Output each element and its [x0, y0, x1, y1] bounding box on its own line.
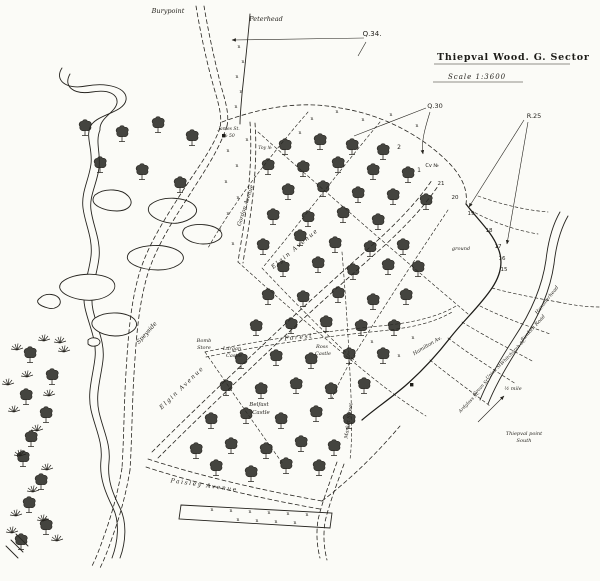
map-label: 21 — [438, 181, 445, 187]
tree-icon-part — [262, 289, 274, 300]
tree-icon — [262, 159, 274, 175]
tree-icon-part — [174, 177, 186, 188]
tree-icon-part — [258, 394, 264, 399]
tree-icon-part — [136, 164, 148, 175]
tree-icon-part — [332, 157, 344, 168]
map-label: Ardglass St. — [457, 390, 482, 415]
marsh-tuft-icon-part — [31, 425, 43, 432]
map-label: 20 — [452, 195, 459, 201]
tree-icon — [346, 139, 358, 155]
map-label: Ross — [315, 344, 328, 350]
tree-icon-part — [243, 419, 249, 424]
map-label: 18 — [486, 228, 493, 234]
tree-icon-part — [24, 347, 36, 358]
tree-icon — [329, 237, 341, 253]
map-label: 16 — [499, 256, 506, 262]
tree-icon-part — [263, 454, 269, 459]
shelter-mark: n — [227, 149, 230, 154]
tree-icon-part — [385, 270, 391, 275]
tree-icon-part — [361, 389, 367, 394]
marsh-tuft-icon — [41, 464, 53, 471]
pond — [88, 338, 100, 346]
trench-map-page: nnnnnnnnnnnnnnnnnnnnnnnnnnnnnnnn Burypoi… — [0, 0, 600, 581]
marsh-tuft-icon-part — [2, 379, 14, 386]
tree-icon-part — [190, 443, 202, 454]
tree-icon-part — [260, 443, 272, 454]
tree-icon-part — [380, 359, 386, 364]
marsh-tuft-icon — [8, 406, 20, 413]
shelter-mark: n — [412, 336, 415, 341]
tree-icon — [367, 294, 379, 310]
forest-ride — [205, 306, 456, 352]
map-label: James St. — [217, 126, 240, 132]
peterhead-trench — [240, 14, 250, 124]
tree-icon-part — [308, 364, 314, 369]
tree-icon-part — [152, 117, 164, 128]
map-label: Toy № — [258, 145, 272, 151]
tree-icon — [388, 320, 400, 336]
marsh-tuft-icon-part — [51, 535, 63, 542]
tree-icon-part — [317, 145, 323, 150]
marsh-tuft-icon-part — [54, 337, 66, 344]
tree-icon-part — [205, 413, 217, 424]
tree-icon-part — [260, 250, 266, 255]
map-title: Thiepval Wood. G. Sector — [437, 52, 590, 63]
q34-arrow — [232, 38, 364, 40]
tree-icon-part — [267, 209, 279, 220]
tree-icon-part — [340, 218, 346, 223]
shelter-mark: n — [230, 509, 233, 514]
tree-icon-part — [49, 380, 55, 385]
tree-icon-part — [390, 200, 396, 205]
tree-icon-part — [275, 413, 287, 424]
shelter-mark: n — [236, 164, 239, 169]
tree-icon-part — [43, 530, 49, 535]
tree-icon-part — [397, 239, 409, 250]
tree-icon — [285, 318, 297, 334]
tree-icon — [343, 348, 355, 364]
tree-icon-part — [26, 508, 32, 513]
tree-icon-part — [35, 474, 47, 485]
wood-north-boundary — [222, 105, 466, 204]
tree-icon-part — [193, 454, 199, 459]
tree-icon-part — [223, 391, 229, 396]
map-label: Belfast — [248, 402, 269, 408]
marsh-tuft-icon-part — [8, 406, 20, 413]
shelter-mark: n — [306, 513, 309, 518]
tree-icon — [372, 214, 384, 230]
map-label: Bomb — [196, 338, 212, 344]
marsh-tuft-icon-part — [27, 486, 39, 493]
marsh-tuft-icon — [21, 371, 33, 378]
tree-icon-part — [245, 466, 257, 477]
tree-icon — [290, 378, 302, 394]
tree-icon-part — [313, 460, 325, 471]
road-south-centre — [324, 464, 344, 560]
tree-icon-part — [323, 327, 329, 332]
wood-ride — [332, 210, 448, 398]
tree-icon-part — [27, 358, 33, 363]
marsh-tuft-icon-part — [41, 464, 53, 471]
tree-icon — [297, 291, 309, 307]
tree-icon-part — [355, 198, 361, 203]
tree-icon — [15, 534, 27, 550]
wood-ride — [258, 132, 468, 314]
map-label: 19 — [468, 211, 475, 217]
tree-icon — [240, 408, 252, 424]
shelter-mark: n — [362, 118, 365, 123]
shelter-marks: nnnnnnnnnnnnnnnnnnnnnnnnnnnnnnnn — [211, 45, 419, 526]
tree-icon — [412, 261, 424, 277]
shelter-mark: n — [232, 242, 235, 247]
shelter-mark: n — [237, 518, 240, 523]
tree-icon-part — [313, 417, 319, 422]
marsh-tuft-icon — [58, 346, 70, 353]
tree-icon-part — [186, 130, 198, 141]
tree-icon — [205, 413, 217, 429]
tree-icon-part — [28, 442, 34, 447]
map-label: Q.34. — [363, 30, 382, 38]
tree-icon-part — [364, 241, 376, 252]
tree-icon-part — [370, 175, 376, 180]
tree-icon-part — [346, 139, 358, 150]
tree-icon-part — [280, 272, 286, 277]
pond — [93, 190, 131, 211]
tree-icon-part — [295, 436, 307, 447]
q30-arrow — [422, 112, 430, 154]
tree-icon — [270, 350, 282, 366]
marsh-tuft-icon — [38, 335, 50, 342]
tree-icon-part — [265, 300, 271, 305]
sunken-road — [546, 212, 560, 260]
map-label: South — [517, 438, 532, 444]
tree-icon-part — [382, 259, 394, 270]
marsh-tuft-icon-part — [43, 390, 55, 397]
tree-icon-part — [20, 389, 32, 400]
tree-icon-part — [240, 408, 252, 419]
tree-icon — [267, 209, 279, 225]
map-label: Elgin Avenue — [157, 365, 205, 412]
tree-icon-part — [273, 361, 279, 366]
tree-icon-part — [332, 248, 338, 253]
tree-icon — [255, 383, 267, 399]
shelter-mark: n — [294, 521, 297, 526]
tree-icon-part — [370, 305, 376, 310]
map-label: Peterhead — [248, 15, 283, 23]
marsh-tuft-icon — [54, 337, 66, 344]
tree-icon — [314, 134, 326, 150]
tree-icon-part — [20, 462, 26, 467]
map-label: Whitchurch St. — [499, 337, 528, 366]
map-extras — [6, 505, 332, 558]
map-label: Thiepval point — [506, 431, 543, 437]
shelter-mark: n — [227, 212, 230, 217]
map-label: Q.30 — [427, 102, 442, 110]
shelter-mark: n — [299, 131, 302, 136]
pond — [148, 198, 196, 223]
comm-trench — [430, 360, 490, 406]
shelter-mark: n — [287, 512, 290, 517]
map-label: 15 — [501, 267, 508, 273]
tree-icon-part — [225, 438, 237, 449]
tree-icon-part — [213, 471, 219, 476]
tree-icon-part — [329, 237, 341, 248]
tree-icon-part — [119, 137, 125, 142]
map-label: Burypoint — [151, 7, 185, 15]
tree-icon-part — [257, 239, 269, 250]
tree-icon — [377, 348, 389, 364]
pond — [127, 245, 183, 270]
tree-icon-part — [280, 458, 292, 469]
tree-icon-part — [262, 159, 274, 170]
tree-icon-part — [270, 220, 276, 225]
shelter-mark: n — [268, 511, 271, 516]
tree-icon — [23, 497, 35, 513]
tree-icon — [312, 257, 324, 273]
tree-icon-part — [305, 222, 311, 227]
marsh-tuft-icon — [10, 510, 22, 517]
tree-icon-part — [255, 383, 267, 394]
tree-icon-part — [285, 318, 297, 329]
tree-icon — [387, 189, 399, 205]
wood-ride — [262, 268, 356, 362]
road-north — [204, 6, 228, 126]
tree-icon — [40, 407, 52, 423]
tree-icon-part — [320, 192, 326, 197]
shelter-mark: n — [240, 90, 243, 95]
marsh-tuft-icon-part — [6, 527, 18, 534]
tree-icon — [297, 161, 309, 177]
tree-icon-part — [415, 272, 421, 277]
pond — [183, 225, 222, 244]
tree-icon — [250, 320, 262, 336]
tree-icon-part — [412, 261, 424, 272]
tree-icon-part — [335, 168, 341, 173]
tree-icon-part — [350, 275, 356, 280]
tree-icon — [302, 211, 314, 227]
shelter-mark: n — [235, 105, 238, 110]
tree-icon — [325, 383, 337, 399]
tree-icon — [220, 380, 232, 396]
tree-icon-part — [46, 369, 58, 380]
tree-icon — [280, 458, 292, 474]
tree-icon — [352, 187, 364, 203]
tree-icon — [328, 440, 340, 456]
tree-icon-part — [283, 469, 289, 474]
tree-icon-part — [314, 134, 326, 145]
tree-icon-part — [388, 320, 400, 331]
q34-tick — [358, 42, 366, 56]
tree-icon-part — [297, 291, 309, 302]
wood-southeast-edge — [322, 426, 400, 501]
tree-icon — [400, 289, 412, 305]
shelter-mark: n — [249, 510, 252, 515]
tree-icon-part — [25, 431, 37, 442]
marsh-tuft-icon-part — [58, 346, 70, 353]
marsh-tuft-icon-part — [21, 371, 33, 378]
marsh-tuft-icon — [2, 379, 14, 386]
tree-icon-part — [325, 383, 337, 394]
tree-icon-part — [316, 471, 322, 476]
tree-icon-part — [282, 184, 294, 195]
tree-icon-part — [298, 447, 304, 452]
tree-icon-part — [391, 331, 397, 336]
tree-icon-part — [40, 407, 52, 418]
shelter-mark: n — [219, 228, 222, 233]
shelter-mark: n — [225, 180, 228, 185]
tree-icon — [332, 287, 344, 303]
marsh-tuft-icon — [51, 535, 63, 542]
shelter-mark: n — [211, 508, 214, 513]
tree-icon-part — [18, 545, 24, 550]
tree-icon-part — [285, 195, 291, 200]
trench-lines — [240, 14, 568, 420]
shelter-mark: n — [256, 519, 259, 524]
tree-icon-part — [355, 320, 367, 331]
tree-icon-part — [189, 141, 195, 146]
map-label: Hamilton Av. — [411, 335, 443, 358]
tree-icon-part — [15, 534, 27, 545]
tree-icon — [402, 167, 414, 183]
tree-icon-part — [38, 485, 44, 490]
tree-icon — [94, 157, 106, 173]
tree-icon — [25, 431, 37, 447]
tree-icon — [317, 181, 329, 197]
tree-icon — [152, 117, 164, 133]
shelter-mark: n — [236, 75, 239, 80]
tree-icon — [310, 406, 322, 422]
tree-icon — [20, 389, 32, 405]
tree-icon — [210, 460, 222, 476]
tree-icon — [282, 184, 294, 200]
tree-icon — [174, 177, 186, 193]
map-label: Hammerhead — [534, 285, 561, 317]
dump-strip — [179, 505, 332, 528]
road-south-centre — [317, 462, 337, 558]
map-label: Castle — [315, 351, 331, 357]
tree-icon — [257, 239, 269, 255]
tree-icon-part — [377, 348, 389, 359]
tree-icon — [295, 436, 307, 452]
roads — [92, 6, 600, 568]
tree-icon-part — [97, 168, 103, 173]
tree-icon-part — [405, 178, 411, 183]
tree-icon-part — [358, 378, 370, 389]
tree-icon-part — [387, 189, 399, 200]
tree-icon-part — [328, 440, 340, 451]
tree-icon-part — [155, 128, 161, 133]
tree-icon — [79, 120, 91, 136]
tree-icon-part — [23, 400, 29, 405]
tree-icon-part — [23, 497, 35, 508]
tree-icon-part — [82, 131, 88, 136]
sunken-road — [554, 216, 568, 264]
map-label: Paisley Avenue — [169, 477, 238, 494]
tree-icon — [245, 466, 257, 482]
tree-icon-part — [343, 348, 355, 359]
dugout-square — [410, 383, 413, 386]
tree-icon-part — [315, 268, 321, 273]
tree-icon-part — [79, 120, 91, 131]
tree-icon-part — [332, 287, 344, 298]
road-southwest — [100, 470, 130, 568]
shelter-mark: n — [311, 117, 314, 122]
tree-icon-part — [400, 250, 406, 255]
tree-icon-part — [279, 139, 291, 150]
shelter-mark: n — [390, 113, 393, 118]
tree-icon — [337, 207, 349, 223]
map-label: 2 — [397, 144, 401, 151]
map-label: Lurgan — [222, 346, 241, 352]
tree-icon — [275, 413, 287, 429]
map-label: 1 — [417, 167, 421, 174]
tree-icon-part — [94, 157, 106, 168]
tree-icon — [46, 369, 58, 385]
comm-trench — [558, 302, 600, 307]
tree-icon-part — [317, 181, 329, 192]
tree-icon-part — [253, 331, 259, 336]
marsh-tuft-icon — [31, 425, 43, 432]
tree-icon — [186, 130, 198, 146]
r25-arrow — [507, 122, 528, 244]
shelter-mark: n — [242, 60, 245, 65]
marsh-tuft-icon-part — [10, 510, 22, 517]
map-scale: Scale 1:3600 — [448, 73, 506, 81]
tree-icon — [116, 126, 128, 142]
map-label: ground — [452, 246, 470, 252]
elgin-avenue — [152, 180, 432, 452]
marsh-tuft-icon — [11, 344, 23, 351]
tree-icon-part — [228, 449, 234, 454]
tree-icon-part — [297, 161, 309, 172]
map-label: 17 — [495, 244, 502, 250]
map-label: Castle — [252, 410, 270, 416]
marsh-tuft-icon — [6, 527, 18, 534]
tree-icon-part — [270, 350, 282, 361]
tree-icon-part — [402, 167, 414, 178]
tree-icon — [332, 157, 344, 173]
tree-icon — [262, 289, 274, 305]
tree-icon — [225, 438, 237, 454]
tree-icon-part — [278, 424, 284, 429]
tree-icon-part — [377, 144, 389, 155]
sunken-road — [488, 264, 554, 404]
tree-icon-part — [337, 207, 349, 218]
shelter-mark: n — [336, 110, 339, 115]
shelter-mark: n — [275, 520, 278, 525]
tree-icon-part — [335, 298, 341, 303]
map-label: Sunken Road — [520, 314, 547, 343]
shelter-mark: n — [416, 124, 419, 129]
tree-icon-part — [328, 394, 334, 399]
tree-icon-part — [310, 406, 322, 417]
half-mile-arrow — [478, 396, 504, 422]
tree-icon-part — [290, 378, 302, 389]
tree-icon — [358, 378, 370, 394]
tree-icon-part — [400, 289, 412, 300]
tree-icon — [397, 239, 409, 255]
tree-icon-part — [312, 257, 324, 268]
map-label: Cv № — [425, 163, 439, 169]
tree-icon-part — [420, 194, 432, 205]
marsh-tuft-icon — [27, 486, 39, 493]
tree-icon — [136, 164, 148, 180]
tree-icon-part — [367, 164, 379, 175]
map-label: R.25 — [527, 112, 542, 120]
tree-icon — [377, 144, 389, 160]
tree-icon-part — [248, 477, 254, 482]
tree-icon-part — [380, 155, 386, 160]
